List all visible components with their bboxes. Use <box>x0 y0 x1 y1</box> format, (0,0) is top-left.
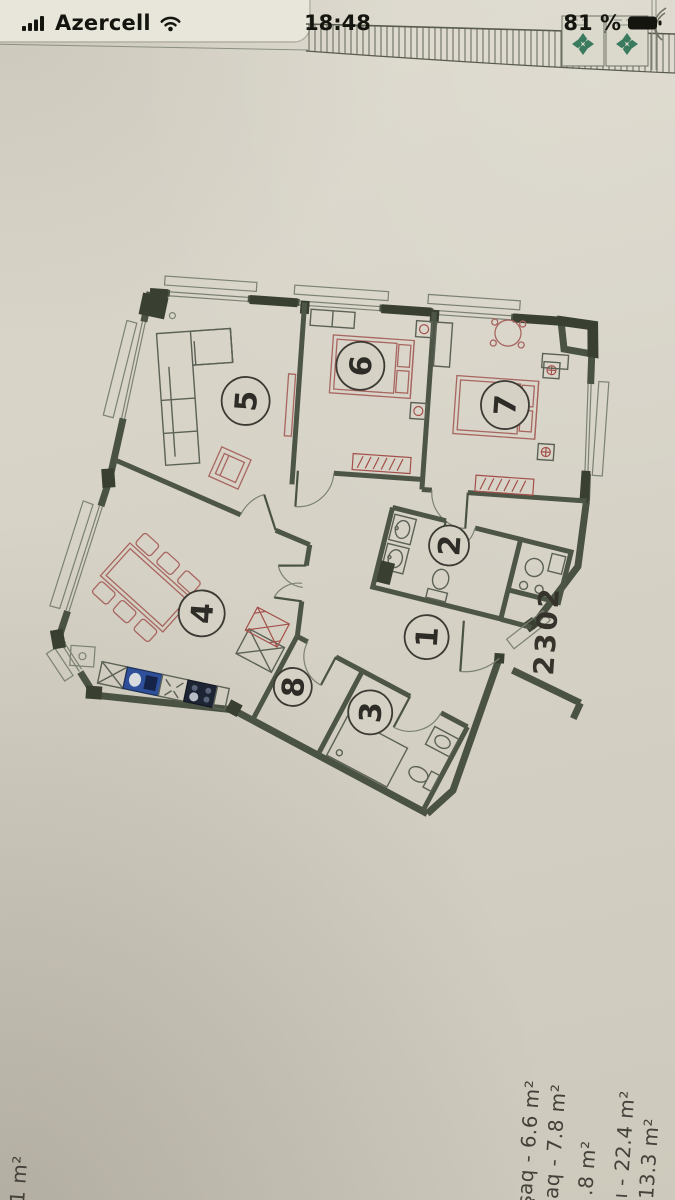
floor-plan-photo: 1 2 3 4 5 <box>0 0 675 1200</box>
status-bar: Azercell 18:48 81 % <box>0 4 675 42</box>
room-2-badge: 2 <box>428 524 471 567</box>
corner-mark <box>169 312 175 318</box>
room-3-number: 3 <box>353 701 389 724</box>
room-3-badge: 3 <box>347 689 394 736</box>
room-6-badge: 6 <box>335 340 386 391</box>
apartment-number: 2302 <box>527 584 566 676</box>
room-5-badge: 5 <box>220 375 271 426</box>
nightstand <box>410 402 427 419</box>
room-5-number: 5 <box>229 389 265 412</box>
area-label-corner: 1 m² <box>5 1155 32 1200</box>
room-7-number: 7 <box>488 393 524 416</box>
room-6-number: 6 <box>343 354 379 377</box>
wardrobe <box>434 322 453 367</box>
room-numbers: 1 2 3 4 5 <box>171 330 532 743</box>
room-1-badge: 1 <box>403 614 450 661</box>
room-4-badge: 4 <box>177 589 226 638</box>
area-label-3: .8 m² <box>573 1140 601 1196</box>
radiator <box>352 454 411 474</box>
room-1-number: 1 <box>410 626 446 649</box>
round-table <box>490 319 526 348</box>
room-4-number: 4 <box>185 602 221 625</box>
floor-plan: 1 2 3 4 5 <box>37 270 614 825</box>
area-label-5: - 13.3 m² <box>633 1117 664 1200</box>
area-labels: şaq - 6.6 m² şaq - 7.8 m² .8 m² ğı - 22.… <box>5 1079 664 1200</box>
sink <box>389 514 417 545</box>
radiator <box>475 475 534 495</box>
coffee-table <box>209 447 251 489</box>
cabinet <box>245 607 289 647</box>
screenshot-root: 1 2 3 4 5 <box>0 0 675 1200</box>
room-6-bedroom <box>300 309 433 474</box>
clock: 18:48 <box>0 11 675 35</box>
doors <box>231 467 512 674</box>
fridge <box>236 629 284 673</box>
room-8-number: 8 <box>276 675 312 698</box>
room-2-number: 2 <box>432 534 468 557</box>
nightstand <box>416 321 433 338</box>
toilet <box>426 567 453 602</box>
